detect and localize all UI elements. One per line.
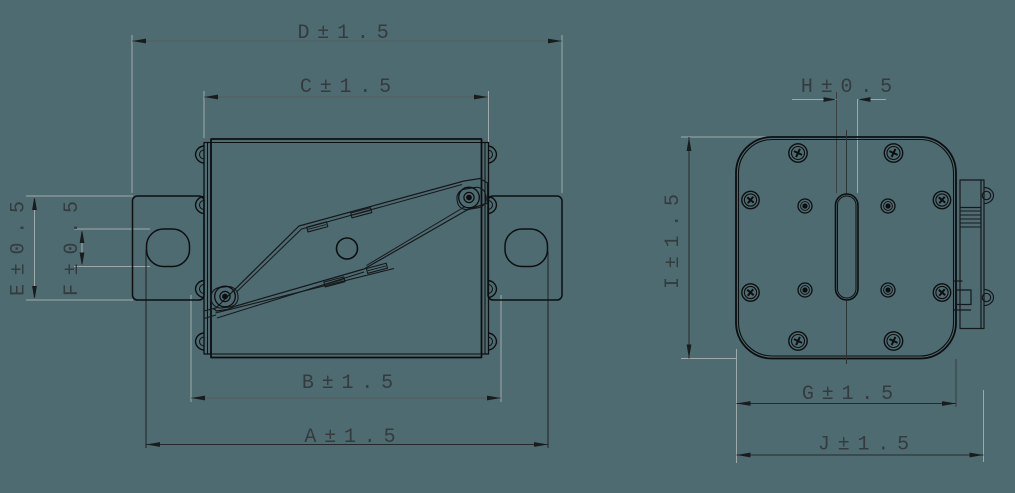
svg-text:H±0.5: H±0.5 xyxy=(801,76,900,99)
svg-text:J±1.5: J±1.5 xyxy=(818,434,917,457)
svg-text:G±1.5: G±1.5 xyxy=(802,383,901,406)
svg-text:C±1.5: C±1.5 xyxy=(300,76,399,99)
svg-text:A±1.5: A±1.5 xyxy=(304,426,403,449)
svg-text:B±1.5: B±1.5 xyxy=(302,372,401,395)
svg-text:F±0.5: F±0.5 xyxy=(61,192,84,296)
svg-text:E±0.5: E±0.5 xyxy=(8,192,31,296)
svg-text:I±1.5: I±1.5 xyxy=(662,185,685,289)
svg-text:D±1.5: D±1.5 xyxy=(297,22,396,45)
